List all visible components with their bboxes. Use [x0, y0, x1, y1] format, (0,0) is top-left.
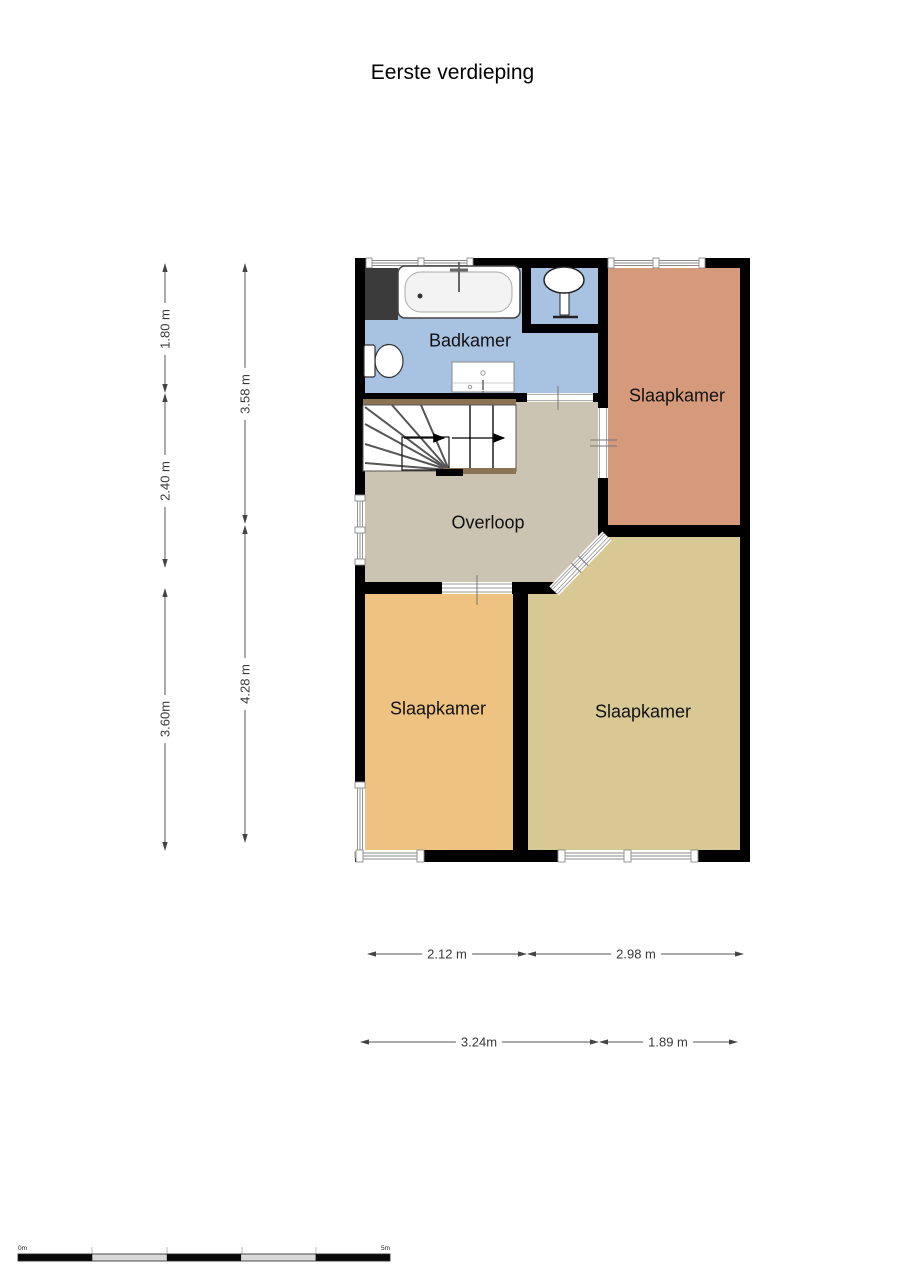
- stair-newel: [436, 469, 463, 476]
- room-label-slaapkamer-bottom-left: Slaapkamer: [390, 699, 486, 720]
- wall-bedrooms-north-left: [355, 582, 442, 594]
- window-top-right: [608, 258, 705, 268]
- room-fills: [360, 263, 746, 855]
- dimension-label: 3.60m: [158, 695, 173, 743]
- scale-end-label: 5m: [381, 1245, 390, 1252]
- room-label-slaapkamer-top-right: Slaapkamer: [629, 386, 725, 407]
- floorplan-drawing: [0, 0, 905, 1280]
- wall-bedroom-west-upper: [598, 263, 608, 408]
- window-bottom-right: [558, 850, 698, 862]
- room-label-overloop: Overloop: [451, 513, 524, 534]
- scale-bar: [18, 1247, 390, 1261]
- toilet-icon: [364, 345, 403, 378]
- dimension-label: 3.58 m: [238, 368, 253, 420]
- wall-salmon-south: [598, 525, 750, 537]
- wall-sinkroom-south: [522, 324, 608, 333]
- dimension-label: 3.24m: [456, 1035, 502, 1050]
- dimension-label: 2.98 m: [611, 947, 661, 962]
- wall-bedroom-divider: [513, 582, 528, 862]
- dimension-label: 1.80 m: [158, 303, 173, 355]
- bathtub-icon: [398, 262, 520, 318]
- floorplan-page: Eerste verdieping: [0, 0, 905, 1280]
- staircase: [363, 399, 516, 476]
- window-left-landing: [355, 495, 365, 565]
- wall-sinkroom-west: [522, 263, 531, 333]
- room-label-badkamer: Badkamer: [429, 331, 511, 352]
- dimension-label: 2.12 m: [422, 947, 472, 962]
- vanity-icon: [452, 362, 514, 393]
- scale-start-label: 0m: [18, 1245, 27, 1252]
- closet-block: [365, 268, 398, 320]
- stair-top-edge: [363, 399, 516, 405]
- dimension-label: 1.89 m: [643, 1035, 693, 1050]
- window-bottom-left: [356, 850, 424, 862]
- wall-right: [740, 258, 750, 862]
- dimension-label: 2.40 m: [158, 455, 173, 507]
- window-left-bedroom: [355, 782, 365, 858]
- dimension-label: 4.28 m: [238, 658, 253, 710]
- room-label-slaapkamer-bottom-right: Slaapkamer: [595, 702, 691, 723]
- room-fill-slaapkamer-bottom-left: [360, 588, 518, 855]
